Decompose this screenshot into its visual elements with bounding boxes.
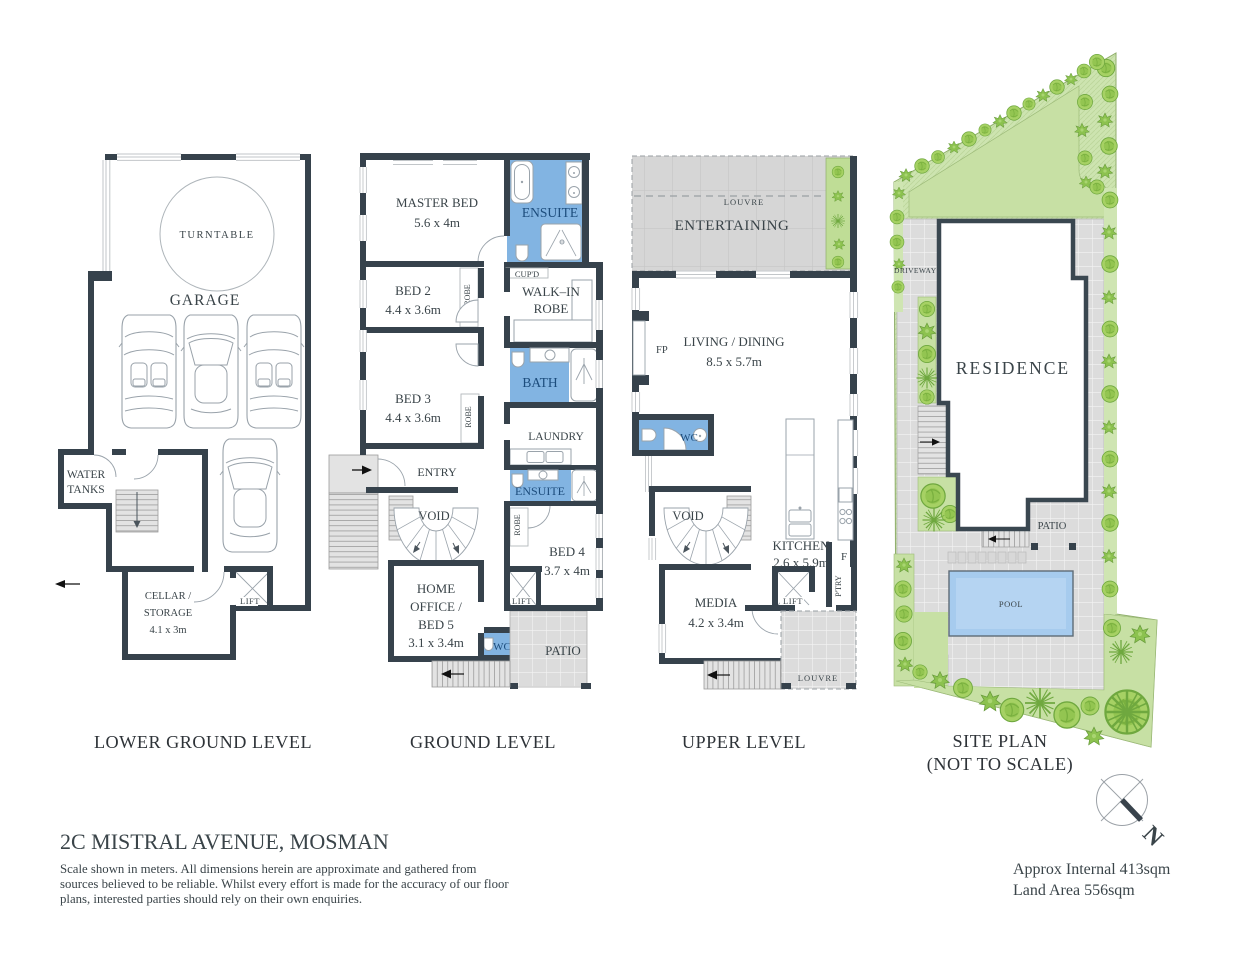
svg-text:4.4 x 3.6m: 4.4 x 3.6m — [385, 410, 441, 425]
svg-text:LIVING / DINING: LIVING / DINING — [683, 334, 784, 349]
svg-text:WC: WC — [493, 641, 511, 653]
svg-text:3.1 x 3.4m: 3.1 x 3.4m — [408, 635, 464, 650]
svg-text:CUP'D: CUP'D — [515, 269, 539, 279]
svg-text:PATIO: PATIO — [1038, 521, 1067, 532]
svg-text:LIFT: LIFT — [512, 596, 532, 606]
svg-text:RESIDENCE: RESIDENCE — [956, 358, 1070, 378]
svg-text:ROBE: ROBE — [534, 301, 569, 316]
svg-text:HOME: HOME — [417, 581, 455, 596]
svg-text:FP: FP — [656, 345, 668, 356]
svg-text:(NOT TO SCALE): (NOT TO SCALE) — [927, 754, 1073, 775]
svg-text:MEDIA: MEDIA — [695, 595, 738, 610]
svg-text:PATIO: PATIO — [545, 643, 581, 658]
svg-text:KITCHEN: KITCHEN — [772, 538, 830, 553]
svg-text:ENSUITE: ENSUITE — [522, 205, 578, 220]
svg-text:plans, interested parties shou: plans, interested parties should rely on… — [60, 892, 362, 906]
svg-text:5.6 x 4m: 5.6 x 4m — [414, 215, 460, 230]
svg-text:LIFT: LIFT — [240, 596, 260, 606]
svg-text:BED 2: BED 2 — [395, 283, 431, 298]
svg-text:POOL: POOL — [999, 599, 1023, 609]
svg-text:WALK–IN: WALK–IN — [522, 284, 580, 299]
svg-text:F: F — [841, 551, 847, 563]
svg-text:BED 3: BED 3 — [395, 391, 431, 406]
svg-text:VOID: VOID — [672, 509, 703, 523]
svg-text:BED 5: BED 5 — [418, 617, 454, 632]
svg-text:BED 4: BED 4 — [549, 544, 585, 559]
svg-text:P'TRY: P'TRY — [834, 575, 843, 597]
svg-text:CELLAR /: CELLAR / — [145, 591, 191, 602]
svg-text:UPPER LEVEL: UPPER LEVEL — [682, 732, 806, 752]
svg-text:LOUVRE: LOUVRE — [798, 673, 838, 683]
svg-text:BATH: BATH — [522, 375, 558, 390]
svg-text:4.1 x 3m: 4.1 x 3m — [149, 625, 186, 636]
svg-text:LAUNDRY: LAUNDRY — [528, 431, 584, 443]
svg-text:4.2 x 3.4m: 4.2 x 3.4m — [688, 615, 744, 630]
svg-text:LOWER GROUND LEVEL: LOWER GROUND LEVEL — [94, 732, 312, 752]
svg-text:2.6 x 5.9m: 2.6 x 5.9m — [773, 555, 829, 570]
svg-text:LIFT: LIFT — [783, 596, 803, 606]
svg-text:Approx Internal 413sqm: Approx Internal 413sqm — [1013, 861, 1171, 878]
svg-text:SITE PLAN: SITE PLAN — [953, 731, 1048, 751]
svg-text:ROBE: ROBE — [464, 406, 473, 427]
svg-text:WC: WC — [680, 432, 698, 444]
svg-text:VOID: VOID — [418, 509, 449, 523]
svg-text:Scale shown in meters. All dim: Scale shown in meters. All dimensions he… — [60, 862, 477, 876]
svg-text:8.5 x 5.7m: 8.5 x 5.7m — [706, 354, 762, 369]
svg-text:OFFICE /: OFFICE / — [410, 599, 462, 614]
svg-text:WATER: WATER — [67, 469, 106, 481]
svg-text:GROUND LEVEL: GROUND LEVEL — [410, 732, 556, 752]
svg-text:4.4 x 3.6m: 4.4 x 3.6m — [385, 302, 441, 317]
svg-text:ENTRY: ENTRY — [417, 465, 457, 479]
svg-text:GARAGE: GARAGE — [170, 292, 241, 309]
svg-text:TURNTABLE: TURNTABLE — [179, 230, 254, 241]
svg-text:LOUVRE: LOUVRE — [724, 197, 764, 207]
svg-text:2C MISTRAL AVENUE, MOSMAN: 2C MISTRAL AVENUE, MOSMAN — [60, 829, 389, 854]
svg-text:STORAGE: STORAGE — [144, 608, 192, 619]
svg-text:sources believed to be reliab: sources believed to be reliable. Whilst … — [60, 877, 509, 891]
svg-text:DRIVEWAY: DRIVEWAY — [894, 266, 937, 275]
svg-text:Land Area 556sqm: Land Area 556sqm — [1013, 882, 1135, 899]
svg-text:MASTER BED: MASTER BED — [396, 195, 478, 210]
svg-text:ROBE: ROBE — [513, 514, 522, 535]
svg-text:3.7 x 4m: 3.7 x 4m — [544, 563, 590, 578]
svg-text:ENSUITE: ENSUITE — [515, 484, 565, 498]
svg-text:ENTERTAINING: ENTERTAINING — [675, 218, 790, 234]
svg-text:TANKS: TANKS — [67, 484, 104, 496]
